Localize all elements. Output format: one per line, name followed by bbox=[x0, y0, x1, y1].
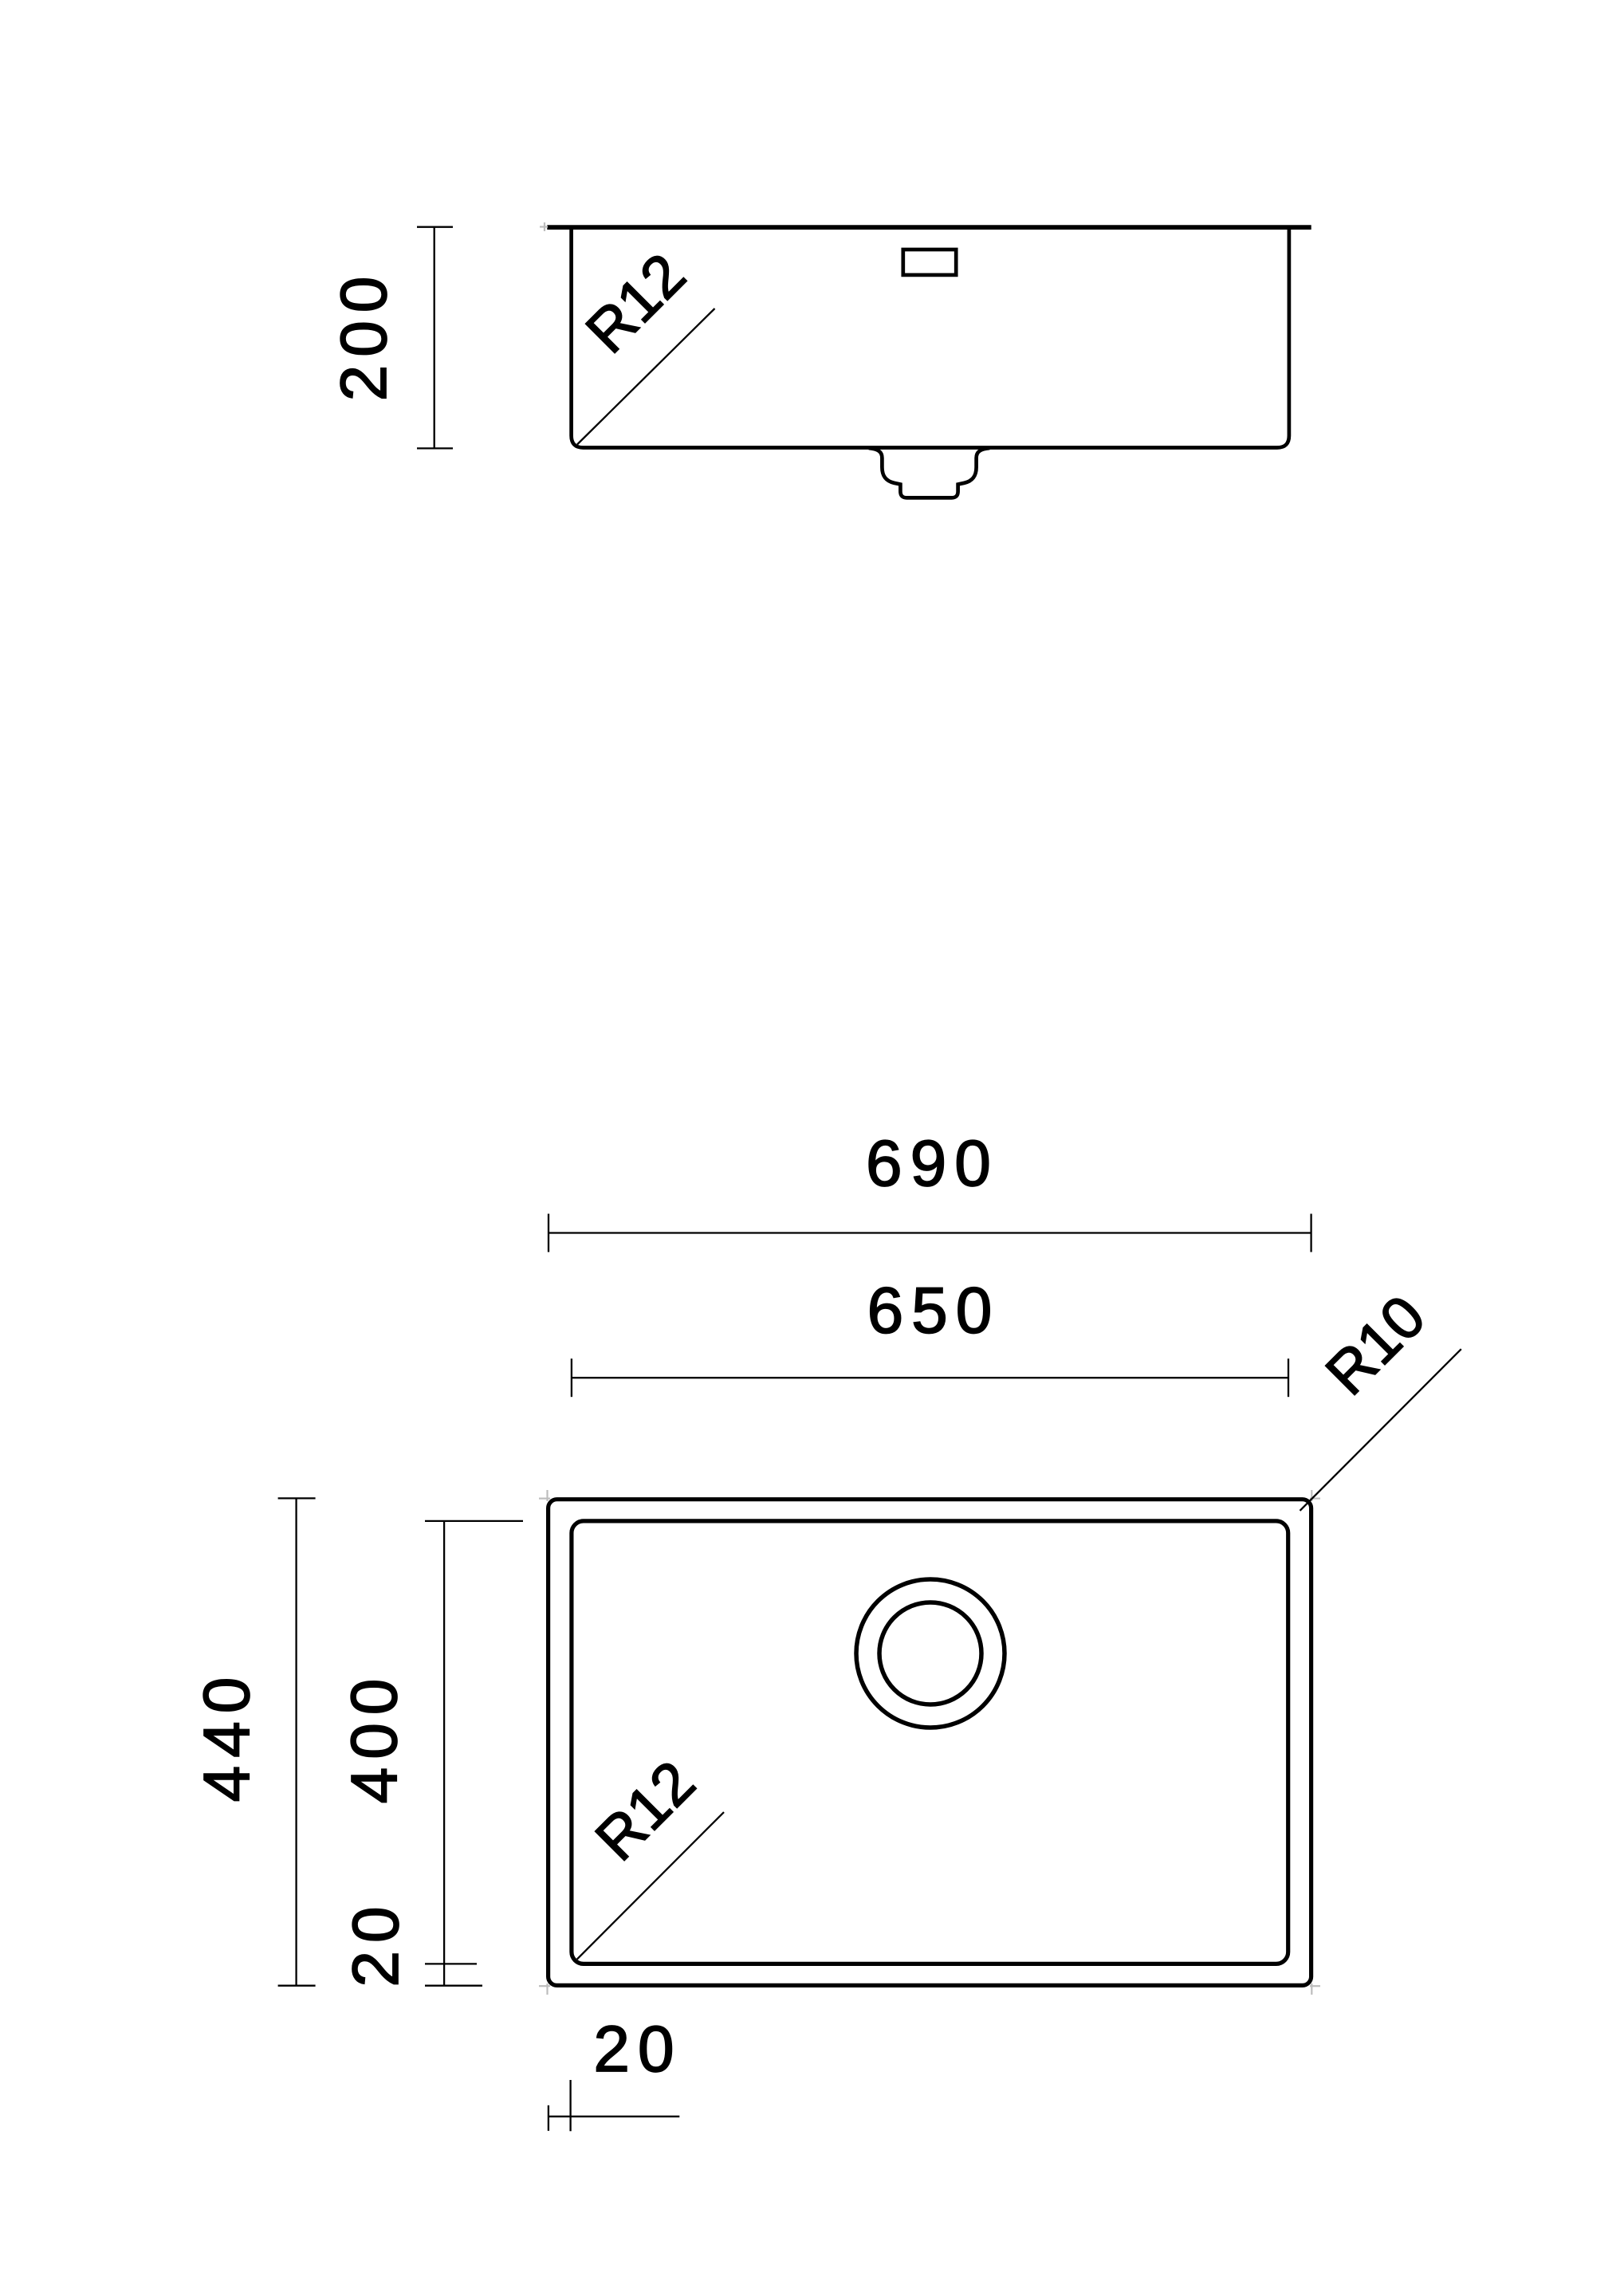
svg-text:20: 20 bbox=[340, 1898, 412, 1987]
svg-text:20: 20 bbox=[593, 2013, 682, 2086]
svg-text:200: 200 bbox=[328, 269, 400, 402]
svg-text:690: 690 bbox=[866, 1127, 999, 1200]
svg-text:400: 400 bbox=[338, 1671, 411, 1804]
svg-text:650: 650 bbox=[867, 1275, 1001, 1347]
svg-text:440: 440 bbox=[191, 1669, 263, 1803]
